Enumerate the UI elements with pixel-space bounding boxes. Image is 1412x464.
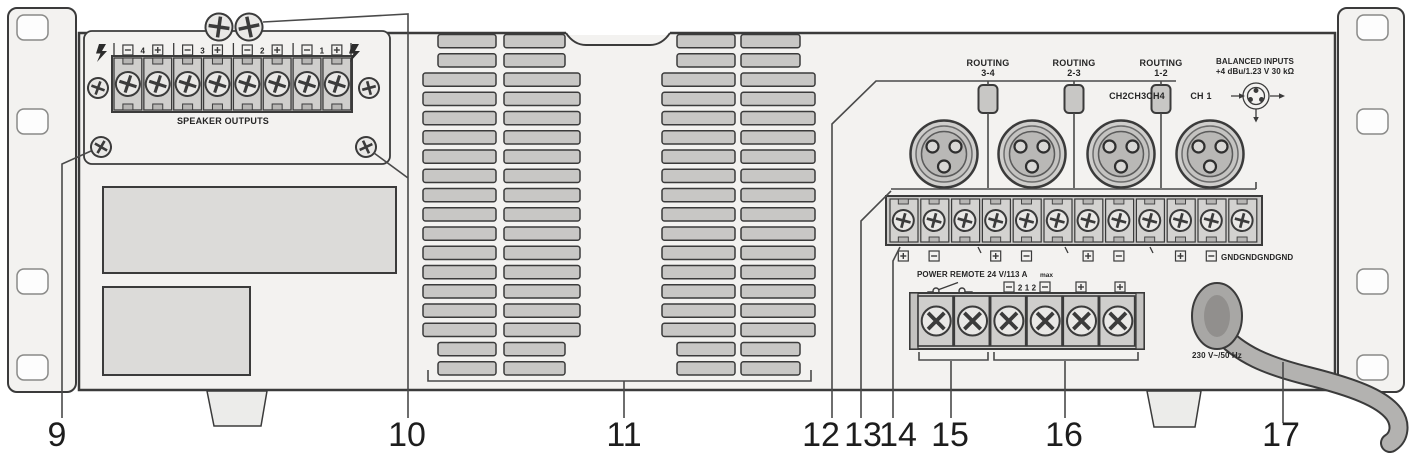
power-remote-label: POWER REMOTE 24 V/113 A <box>917 270 1028 279</box>
speaker-outputs-label: SPEAKER OUTPUTS <box>177 116 269 126</box>
speaker-plus-label <box>153 45 163 55</box>
vent-slot <box>662 92 735 105</box>
speaker-minus-label <box>302 45 312 55</box>
terminal-clamp <box>929 237 939 242</box>
callout-9: 9 <box>48 416 67 454</box>
vent-slot <box>741 246 815 259</box>
vent-slot <box>504 92 580 105</box>
vent-slot <box>504 189 580 202</box>
terminal-clamp <box>1237 199 1247 204</box>
vent-slot <box>438 35 496 48</box>
input-plus-label <box>1083 251 1093 261</box>
xlr-pin <box>1204 161 1216 173</box>
vent-slot <box>741 35 800 48</box>
blank-box-small <box>103 287 250 375</box>
terminal-clamp <box>1237 237 1247 242</box>
speaker-outputs-section: 4321 SPEAKER OUTPUTS <box>84 31 390 164</box>
input-plus-label <box>1176 251 1186 261</box>
callout-13: 13 <box>844 416 882 454</box>
balanced-inputs-title: BALANCED INPUTS <box>1216 57 1295 66</box>
channel-group-label: CH2CH3CH4 <box>1109 91 1165 101</box>
routing-label-line2: 3-4 <box>981 68 995 78</box>
input-minus-label <box>1114 251 1124 261</box>
vent-slot <box>662 266 735 279</box>
vent-slot <box>662 150 735 163</box>
mounting-hole <box>17 269 48 294</box>
vent-slot <box>741 189 815 202</box>
power-block-end-right <box>1136 293 1144 349</box>
vent-slot <box>438 54 496 67</box>
speaker-plus-label <box>332 45 342 55</box>
input-plus-label <box>991 251 1001 261</box>
ground-label: GNDGNDGNDGND <box>1221 253 1293 262</box>
speaker-plus-label <box>272 45 282 55</box>
terminal-clamp <box>1206 199 1216 204</box>
routing-label-line1: ROUTING <box>967 58 1010 68</box>
vent-slot <box>662 246 735 259</box>
speaker-minus-label <box>123 45 133 55</box>
vent-slot <box>504 169 580 182</box>
mounting-hole <box>1357 355 1388 380</box>
terminal-clamp <box>153 58 163 64</box>
vent-slot <box>662 189 735 202</box>
vent-slot <box>504 246 580 259</box>
terminal-clamp <box>153 104 163 110</box>
vent-slot <box>504 266 580 279</box>
terminal-clamp <box>183 104 193 110</box>
terminal-clamp <box>242 58 252 64</box>
vent-slot <box>423 304 496 317</box>
terminal-clamp <box>302 58 312 64</box>
xlr-connector-2 <box>999 121 1066 188</box>
vent-slot <box>423 189 496 202</box>
terminal-clamp <box>212 58 222 64</box>
vent-slot <box>677 54 735 67</box>
power-remote-terminals <box>916 296 1139 346</box>
vent-slot <box>741 362 800 375</box>
routing-label-line2: 2-3 <box>1067 68 1081 78</box>
terminal-clamp <box>123 104 133 110</box>
vent-slot <box>504 54 565 67</box>
terminal-clamp <box>1114 199 1124 204</box>
mounting-hole <box>17 355 48 380</box>
terminal-clamp <box>242 104 252 110</box>
terminal-clamp <box>302 104 312 110</box>
mounting-hole <box>1357 109 1388 134</box>
vent-slot <box>741 112 815 125</box>
vent-slot <box>423 131 496 144</box>
speaker-channel-number: 4 <box>141 47 146 56</box>
vent-slot <box>504 304 580 317</box>
terminal-clamp <box>929 199 939 204</box>
vent-slot <box>662 227 735 240</box>
input-plus-label <box>898 251 908 261</box>
routing-label-line1: ROUTING <box>1140 58 1183 68</box>
callout-16: 16 <box>1045 416 1083 454</box>
callout-12: 12 <box>802 416 840 454</box>
routing-switch <box>979 85 998 113</box>
vent-slot <box>741 304 815 317</box>
vent-slot <box>423 169 496 182</box>
vent-slot <box>741 73 815 86</box>
speaker-channel-number: 2 <box>260 47 265 56</box>
vent-slot <box>504 227 580 240</box>
vent-slot <box>504 362 565 375</box>
speaker-plus-label <box>212 45 222 55</box>
mounting-hole <box>17 15 48 40</box>
xlr-pin <box>1127 141 1139 153</box>
power-minus-label <box>1040 282 1050 292</box>
vent-slot <box>741 285 815 298</box>
speaker-minus-label <box>242 45 252 55</box>
vent-slot <box>662 285 735 298</box>
terminal-clamp <box>1052 237 1062 242</box>
vent-slot <box>741 92 815 105</box>
channel-1-label: CH 1 <box>1190 91 1211 101</box>
vent-slot <box>662 131 735 144</box>
vent-slot <box>662 169 735 182</box>
terminal-clamp <box>898 237 908 242</box>
terminal-clamp <box>332 58 342 64</box>
vent-slot <box>741 54 800 67</box>
vent-slot <box>504 208 580 221</box>
rack-ear-right-body <box>1338 8 1404 392</box>
vent-slot <box>423 323 496 336</box>
vent-slot <box>741 169 815 182</box>
terminal-clamp <box>1176 199 1186 204</box>
vent-slot <box>423 246 496 259</box>
input-minus-label <box>1022 251 1032 261</box>
mounting-hole <box>1357 15 1388 40</box>
vent-slot <box>662 323 735 336</box>
amplifier-rear-panel-diagram: 4321 SPEAKER OUTPUTS ROUTING3-4ROUTING2-… <box>0 0 1412 464</box>
routing-label-line1: ROUTING <box>1053 58 1096 68</box>
vent-slot <box>423 92 496 105</box>
xlr-pin <box>1038 141 1050 153</box>
xlr-pin <box>1115 161 1127 173</box>
vent-slot <box>423 285 496 298</box>
callout-17: 17 <box>1262 416 1300 454</box>
speaker-channel-number: 1 <box>320 47 325 56</box>
terminal-clamp <box>898 199 908 204</box>
terminal-clamp <box>960 199 970 204</box>
mains-voltage-label: 230 V~/50 Hz <box>1192 351 1242 360</box>
terminal-clamp <box>1145 199 1155 204</box>
terminal-clamp <box>991 199 1001 204</box>
vent-slot <box>662 112 735 125</box>
power-plus-label <box>1115 282 1125 292</box>
xlr-pin <box>938 161 950 173</box>
xlr-pin <box>950 141 962 153</box>
speaker-minus-label <box>183 45 193 55</box>
power-remote-max-label: max <box>1040 272 1053 279</box>
power-block-end-left <box>910 293 918 349</box>
vent-slot <box>504 131 580 144</box>
input-minus-label <box>929 251 939 261</box>
balanced-inputs-spec: +4 dBu/1.23 V 30 kΩ <box>1216 67 1295 76</box>
routing-switch <box>1065 85 1084 113</box>
xlr-connector-1 <box>911 121 978 188</box>
vent-slot <box>741 266 815 279</box>
terminal-clamp <box>1114 237 1124 242</box>
vent-slot <box>677 343 735 356</box>
vent-slot <box>662 304 735 317</box>
vent-slot <box>504 343 565 356</box>
vent-slot <box>423 208 496 221</box>
callout-11: 11 <box>606 416 641 454</box>
terminal-clamp <box>991 237 1001 242</box>
vent-slot <box>504 150 580 163</box>
vent-slot <box>741 227 815 240</box>
vent-slot <box>504 112 580 125</box>
routing-label-line2: 1-2 <box>1154 68 1168 78</box>
vent-slot <box>504 73 580 86</box>
terminal-clamp <box>123 58 133 64</box>
xlr-pin <box>1216 141 1228 153</box>
vent-slot <box>423 112 496 125</box>
vent-slot <box>423 227 496 240</box>
vent-slot <box>504 35 565 48</box>
xlr-pin <box>1015 141 1027 153</box>
vent-slot <box>438 343 496 356</box>
vent-slot <box>741 343 800 356</box>
terminal-clamp <box>1145 237 1155 242</box>
vent-slot <box>423 73 496 86</box>
speaker-channel-number: 3 <box>200 47 205 56</box>
vent-slot <box>677 362 735 375</box>
callout-15: 15 <box>931 416 969 454</box>
terminal-clamp <box>272 58 282 64</box>
cable-grommet-center <box>1204 295 1230 337</box>
rack-ear-right <box>1338 8 1404 392</box>
xlr-connector-4 <box>1177 121 1244 188</box>
vent-slot <box>741 208 815 221</box>
vent-slot <box>504 323 580 336</box>
vent-slot <box>662 73 735 86</box>
vent-slot <box>741 150 815 163</box>
vent-slot <box>423 150 496 163</box>
xlr-pin <box>1193 141 1205 153</box>
terminal-clamp <box>1083 199 1093 204</box>
power-plus-label <box>1076 282 1086 292</box>
input-minus-label <box>1206 251 1216 261</box>
vent-slot <box>741 323 815 336</box>
power-terminal-numbers: 2 1 2 <box>1018 284 1037 293</box>
mounting-hole <box>1357 269 1388 294</box>
terminal-clamp <box>1083 237 1093 242</box>
terminal-clamp <box>1022 237 1032 242</box>
terminal-clamp <box>1176 237 1186 242</box>
power-minus-label <box>1004 282 1014 292</box>
vent-slot <box>438 362 496 375</box>
terminal-clamp <box>1052 199 1062 204</box>
vent-slot <box>662 208 735 221</box>
callout-10: 10 <box>388 416 426 454</box>
terminal-clamp <box>212 104 222 110</box>
xlr-connector-3 <box>1088 121 1155 188</box>
panel-notch-mask <box>566 30 670 35</box>
terminal-clamp <box>332 104 342 110</box>
chassis-foot-left <box>207 391 267 426</box>
blank-box-large <box>103 187 396 273</box>
xlr-pin <box>927 141 939 153</box>
callout-14: 14 <box>879 416 917 454</box>
terminal-clamp <box>183 58 193 64</box>
xlr-pin <box>1026 161 1038 173</box>
vent-slot <box>423 266 496 279</box>
mounting-hole <box>17 109 48 134</box>
rack-ear-left <box>8 8 76 392</box>
chassis-foot-right <box>1147 391 1201 427</box>
terminal-clamp <box>272 104 282 110</box>
vent-slot <box>677 35 735 48</box>
terminal-clamp <box>1206 237 1216 242</box>
terminal-clamp <box>1022 199 1032 204</box>
vent-slot <box>504 285 580 298</box>
rack-ear-left-body <box>8 8 76 392</box>
vent-slot <box>741 131 815 144</box>
terminal-clamp <box>960 237 970 242</box>
xlr-pin <box>1104 141 1116 153</box>
